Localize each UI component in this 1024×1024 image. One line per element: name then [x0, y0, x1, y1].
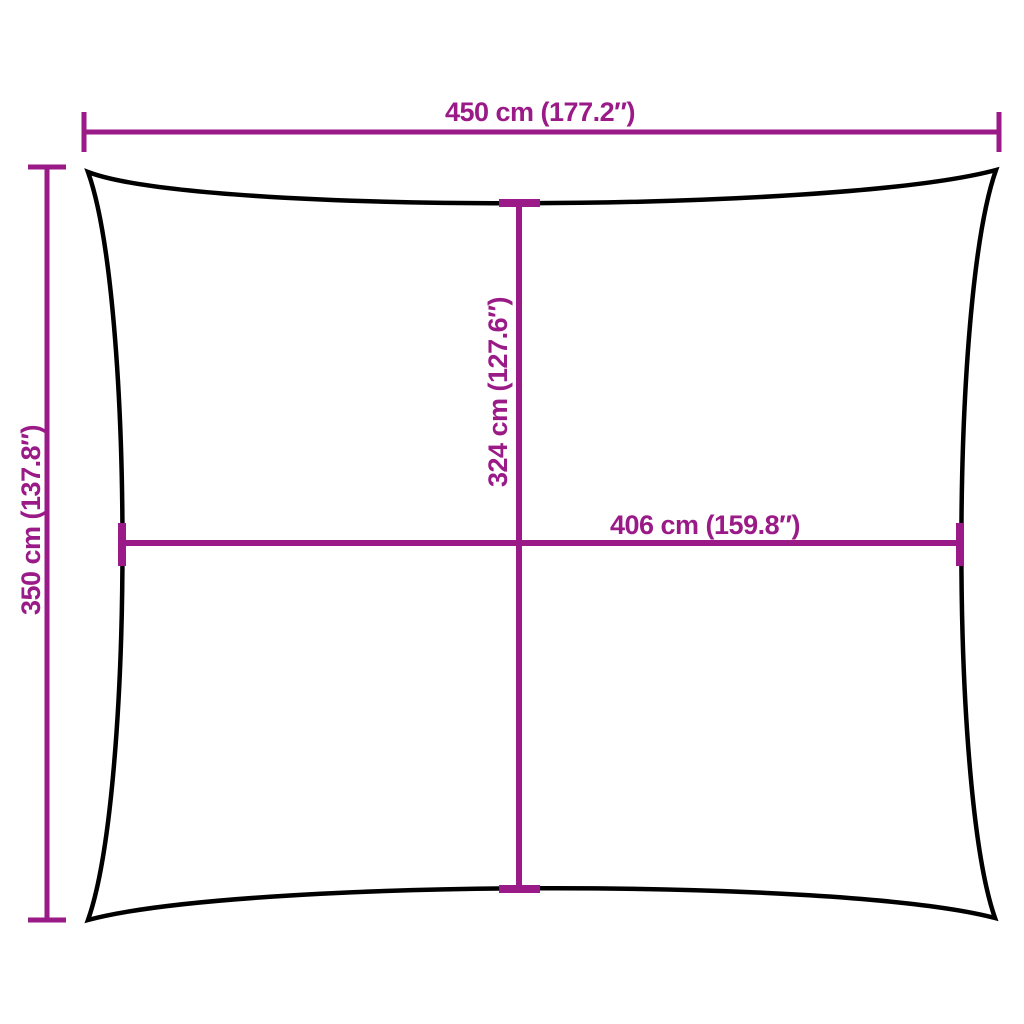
side-height-dimension: 350 cm (137.8″): [16, 167, 66, 920]
center-height-label: 324 cm (127.6″): [483, 297, 513, 487]
top-width-label: 450 cm (177.2″): [445, 97, 635, 127]
top-width-dimension: 450 cm (177.2″): [84, 97, 999, 152]
center-width-dimension: 406 cm (159.8″): [122, 510, 960, 566]
center-width-label: 406 cm (159.8″): [610, 510, 800, 540]
side-height-label: 350 cm (137.8″): [16, 425, 46, 615]
product-dimension-image: 450 cm (177.2″) 350 cm (137.8″) 324 cm (…: [0, 0, 1024, 1024]
dimension-diagram: 450 cm (177.2″) 350 cm (137.8″) 324 cm (…: [0, 0, 1024, 1024]
